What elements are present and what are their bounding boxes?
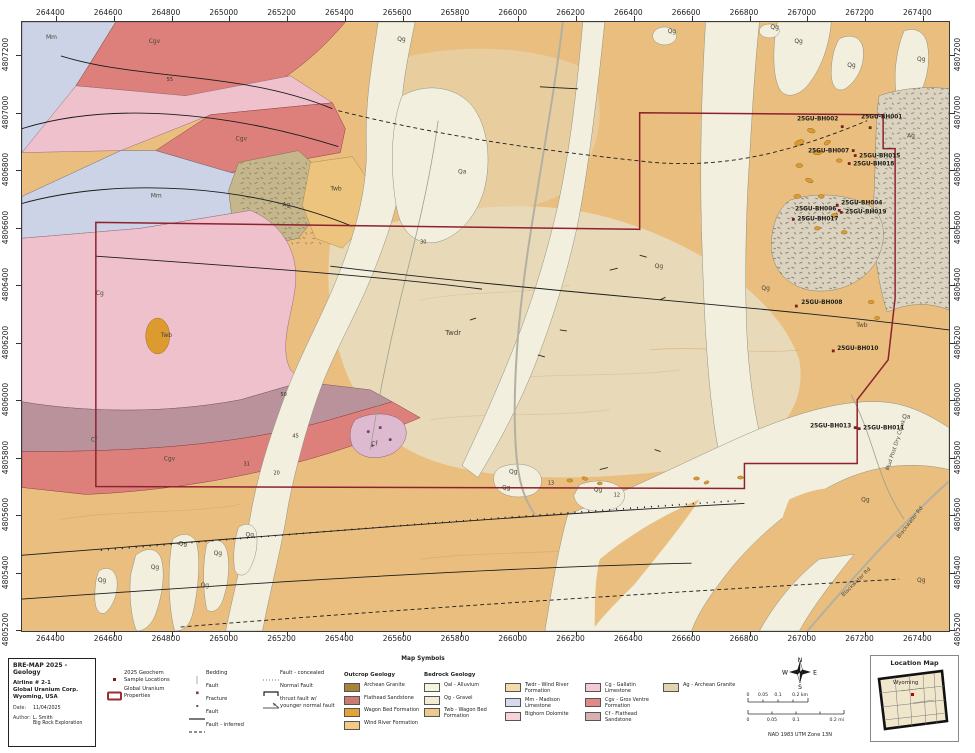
x-coord-bottom: 266200 [556, 634, 585, 643]
wyoming-map: Wyoming [871, 667, 958, 733]
date-label: Date: [13, 706, 29, 711]
sample-label: 25GU-BH011 [863, 426, 904, 432]
datum-note: NAD 1983 UTM Zone 13N [745, 732, 855, 738]
grid-tick [950, 113, 955, 114]
x-coord-top: 264800 [152, 8, 181, 17]
km-tick-label: 0.05 [758, 692, 768, 698]
symbol-legend-column: BeddingFaultFractureFaultFault - inferre… [188, 670, 244, 735]
geology-legend-item: Flathead Sandstone [344, 695, 419, 705]
geology-legend-column: Twdr - Wind RiverFormationMm - MadisonLi… [505, 672, 569, 724]
unit-label: Twb [160, 332, 173, 339]
grid-tick [16, 515, 21, 516]
dip-label: 50 [280, 392, 286, 398]
grid-tick [950, 458, 955, 459]
grid-tick [229, 16, 230, 21]
geology-legend-item: Cf - FlatheadSandstone [585, 711, 649, 723]
grid-tick [634, 632, 635, 637]
geology-legend-item: Wagon Bed Formation [344, 707, 419, 717]
legend-item: Fault - concealed [262, 670, 335, 680]
grid-tick [345, 632, 346, 637]
unit-label: Twb [329, 185, 342, 192]
unit-label: Wind River Formation [364, 720, 418, 726]
mi-labels: 00.050.10.2 mi [747, 717, 844, 723]
legend-item-label: Normal Fault [280, 683, 313, 690]
bedding-icon [188, 670, 206, 680]
unit-label: Cg - GallatinLimestone [605, 682, 636, 694]
grid-tick [16, 170, 21, 171]
x-coord-bottom: 266000 [498, 634, 527, 643]
sample-label: 25GU-BH018 [853, 162, 894, 168]
x-coord-bottom: 267400 [903, 634, 932, 643]
geology-legend-column: Cg - GallatinLimestoneCgv - Gros VentreF… [585, 672, 649, 726]
grid-tick [172, 632, 173, 637]
unit-label: Twdr - Wind RiverFormation [525, 682, 569, 694]
grid-tick [56, 16, 57, 21]
y-coord-left: 4805200 [1, 613, 10, 646]
page: MmCgvCgvMmAgTwbQaQgQgQgQgQgQgAgCgTwbCfCg… [0, 0, 975, 753]
grid-tick [950, 515, 955, 516]
unit-color-swatch [585, 683, 601, 692]
legend-item-label: 2025 GeochemSample Locations [124, 670, 170, 683]
compass-e: E [813, 670, 817, 677]
unit-label: Cgv [149, 38, 161, 45]
thrust-fault-icon [262, 696, 280, 706]
grid-tick [807, 16, 808, 21]
map-canvas: MmCgvCgvMmAgTwbQaQgQgQgQgQgQgAgCgTwbCfCg… [21, 21, 950, 632]
sample-marker [848, 162, 851, 165]
unit-label: Mm [46, 34, 57, 41]
unit-label: Wagon Bed Formation [364, 707, 419, 713]
location-map: Location Map Wyoming [870, 655, 959, 742]
geology-group-header [505, 672, 569, 679]
grid-tick [950, 55, 955, 56]
grid-tick [950, 573, 955, 574]
unit-label: Flathead Sandstone [364, 695, 414, 701]
unit-label: Twb [855, 322, 868, 329]
y-coord-left: 4807200 [1, 38, 10, 71]
unit-label: Cgv [236, 136, 248, 143]
author-label: Author: [13, 716, 29, 726]
unit-label: Qg [794, 38, 803, 45]
x-coord-top: 266400 [614, 8, 643, 17]
unit-label: Qa [902, 414, 911, 421]
unit-label: Qg [214, 550, 223, 557]
unit-color-swatch [585, 698, 601, 707]
unit-label: Qg [594, 486, 603, 493]
unit-label: Qg [246, 531, 255, 538]
legend-item-label: Global UraniumProperties [124, 686, 164, 699]
x-coord-bottom: 265600 [383, 634, 412, 643]
fault-concealed-icon [262, 670, 280, 680]
unit-label: Mm - MadisonLimestone [525, 697, 560, 709]
unit-color-swatch [424, 696, 440, 705]
legend-item: Fault - inferred [188, 722, 244, 732]
project-name: Airline # 2-1 [13, 680, 91, 687]
grid-tick [865, 16, 866, 21]
unit-label: Qg [502, 484, 511, 491]
x-coord-top: 265800 [441, 8, 470, 17]
geology-legend-item: Cgv - Gros VentreFormation [585, 697, 649, 709]
project-location: Wyoming, USA [13, 694, 91, 701]
unit-label: Qg [397, 36, 406, 43]
grid-tick [750, 16, 751, 21]
unit-color-swatch [585, 712, 601, 721]
dip-label: 12 [614, 492, 620, 498]
sample-label: 25GU-BH013 [810, 424, 851, 430]
map-title: BRE-MAP 2025 - Geology [13, 662, 91, 676]
sample-label: 25GU-BH002 [797, 117, 838, 123]
sample-marker [840, 211, 843, 214]
grid-tick [807, 632, 808, 637]
grid-tick [950, 400, 955, 401]
sample-label: 25GU-BH015 [859, 154, 900, 160]
unit-label: Qg [847, 62, 856, 69]
sample-marker [858, 427, 861, 430]
x-coord-top: 267000 [787, 8, 816, 17]
x-coord-bottom: 264400 [36, 634, 65, 643]
grid-tick [950, 285, 955, 286]
company-name: Global Uranium Corp. [13, 687, 91, 694]
grid-tick [16, 343, 21, 344]
x-coord-top: 264600 [94, 8, 123, 17]
compass-n: N [798, 657, 803, 664]
grid-tick [287, 16, 288, 21]
unit-color-swatch [424, 708, 440, 717]
unit-label: Cf [91, 437, 98, 444]
legend-item: Fault [188, 709, 244, 719]
date-row: Date: 11/04/2025 [13, 706, 91, 711]
legend-item: Fault [188, 683, 244, 693]
sample-label: 25GU-BH004 [841, 200, 882, 206]
unit-label: Qg [917, 56, 926, 63]
sample-marker [792, 218, 795, 221]
dip-label: 31 [244, 462, 250, 468]
grid-tick [287, 632, 288, 637]
mi-tick-label: 0 [747, 717, 750, 723]
y-coord-left: 4807000 [1, 95, 10, 128]
fault-dot-icon [188, 683, 206, 693]
x-coord-top: 265200 [267, 8, 296, 17]
x-coord-top: 267400 [903, 8, 932, 17]
unit-color-swatch [344, 708, 360, 717]
unit-label: Qg - Gravel [444, 695, 473, 701]
grid-tick [950, 630, 955, 631]
geology-legend-item: Ag - Archean Granite [663, 682, 735, 692]
geology-group-header [663, 672, 735, 679]
geology-legend-item: Cg - GallatinLimestone [585, 682, 649, 694]
grid-tick [114, 16, 115, 21]
unit-label: Qg [917, 577, 926, 584]
x-coord-bottom: 265800 [441, 634, 470, 643]
legend-item-label: Fault [206, 683, 218, 690]
unit-label: Cf [371, 441, 378, 448]
sample-dot-icon [106, 670, 124, 680]
km-bar [748, 698, 808, 702]
unit-label: Qg [655, 263, 664, 270]
fracture-dot-icon [188, 696, 206, 706]
gallatin-main [22, 210, 302, 410]
legend-item: 2025 GeochemSample Locations [106, 670, 170, 683]
grid-tick [461, 16, 462, 21]
unit-label: Qal - Alluvium [444, 682, 479, 688]
unit-color-swatch [424, 683, 440, 692]
y-coord-left: 4806600 [1, 210, 10, 243]
mi-tick-label: 0.2 mi [829, 717, 844, 723]
unit-label: Qg [861, 496, 870, 503]
grid-tick [16, 400, 21, 401]
unit-label: Cgv - Gros VentreFormation [605, 697, 649, 709]
x-coord-top: 265400 [325, 8, 354, 17]
map-symbols-title: Map Symbols [388, 656, 458, 662]
grid-tick [16, 113, 21, 114]
grid-tick [518, 632, 519, 637]
grid-tick [229, 632, 230, 637]
date-value: 11/04/2025 [33, 706, 61, 711]
sample-label: 25GU-BH010 [837, 346, 878, 352]
dip-label: 55 [167, 77, 173, 83]
legend-item: Normal Fault [262, 683, 335, 693]
unit-color-swatch [505, 683, 521, 692]
grid-tick [16, 458, 21, 459]
x-coord-top: 265600 [383, 8, 412, 17]
sample-label: 25GU-BH008 [801, 300, 842, 306]
x-coord-bottom: 266600 [672, 634, 701, 643]
geology-legend-item: Qg - Gravel [424, 695, 487, 705]
geology-legend-item: Twb - Wagon BedFormation [424, 707, 487, 719]
y-coord-left: 4805400 [1, 555, 10, 588]
fault-line-icon [188, 709, 206, 719]
sample-label: 25GU-BH007 [808, 149, 849, 155]
grid-tick [172, 16, 173, 21]
grid-tick [16, 630, 21, 631]
grid-tick [950, 228, 955, 229]
unit-label: Ag - Archean Granite [683, 682, 735, 688]
sample-marker [836, 204, 839, 207]
unit-label: Bighorn Dolomite [525, 711, 569, 717]
grid-tick [923, 16, 924, 21]
grid-tick [692, 632, 693, 637]
x-coord-top: 266200 [556, 8, 585, 17]
sample-marker [869, 126, 872, 129]
grid-tick [56, 632, 57, 637]
x-coord-top: 267200 [845, 8, 874, 17]
unit-label: Qg [509, 469, 518, 476]
sample-label: 25GU-BH006 [795, 206, 836, 212]
x-coord-bottom: 265200 [267, 634, 296, 643]
unit-color-swatch [505, 698, 521, 707]
legend-item-label: Fault [206, 709, 218, 716]
geology-legend-column: Bedrock GeologyQal - AlluviumQg - Gravel… [424, 672, 487, 722]
north-arrow: N W E S [780, 656, 820, 690]
symbol-legend-column: Fault - concealedNormal Faultthrust faul… [262, 670, 335, 712]
grid-tick [16, 55, 21, 56]
property-rect-icon [106, 686, 124, 696]
geology-legend-item: Archean Granite [344, 682, 419, 692]
grid-tick [403, 16, 404, 21]
x-coord-bottom: 264800 [152, 634, 181, 643]
geology-legend-item: Mm - MadisonLimestone [505, 697, 569, 709]
unit-label: Qa [458, 169, 467, 176]
grid-tick [16, 228, 21, 229]
archean-speckle-east [873, 88, 949, 312]
km-labels: 00.050.10.2 km [747, 692, 809, 698]
mi-bar [748, 710, 844, 714]
x-coord-bottom: 266400 [614, 634, 643, 643]
grid-tick [865, 632, 866, 637]
compass-w: W [782, 670, 788, 677]
grid-tick [16, 285, 21, 286]
dip-label: 20 [273, 471, 279, 477]
dip-label: 13 [548, 480, 554, 486]
unit-label: Twb - Wagon BedFormation [444, 707, 487, 719]
unit-color-swatch [344, 721, 360, 730]
legend-item-label: Bedding [206, 670, 227, 677]
mi-tick-label: 0.1 [792, 717, 799, 723]
x-coord-bottom: 265400 [325, 634, 354, 643]
unit-label: Ag [907, 133, 915, 140]
site-marker [911, 693, 914, 696]
x-coord-top: 265000 [209, 8, 238, 17]
grid-tick [576, 16, 577, 21]
unit-label: Qg [668, 28, 677, 35]
grid-tick [576, 632, 577, 637]
x-coord-bottom: 266800 [730, 634, 759, 643]
normal-fault-icon [262, 683, 280, 693]
grid-tick [750, 632, 751, 637]
sample-marker [832, 350, 835, 353]
dip-label: 45 [292, 434, 298, 440]
y-coord-left: 4806000 [1, 383, 10, 416]
geology-group-header: Bedrock Geology [424, 672, 487, 679]
km-tick-label: 0.1 [774, 692, 781, 698]
fault-inferred-icon [188, 722, 206, 732]
sample-marker [854, 426, 857, 429]
unit-label: Qg [151, 564, 160, 571]
title-block: BRE-MAP 2025 - Geology Airline # 2-1 Glo… [8, 658, 96, 747]
location-map-title: Location Map [871, 659, 958, 667]
grid-tick [692, 16, 693, 21]
sample-label: 25GU-BH019 [845, 209, 886, 215]
sample-marker [852, 149, 855, 152]
legend-item: thrust fault w/younger normal fault [262, 696, 335, 709]
grid-tick [518, 16, 519, 21]
unit-label: Cg [96, 290, 104, 297]
y-coord-left: 4805600 [1, 498, 10, 531]
x-coord-top: 266800 [730, 8, 759, 17]
geology-legend-column: Outcrop GeologyArchean GraniteFlathead S… [344, 672, 419, 732]
geology-group-header [585, 672, 649, 679]
geologic-map: MmCgvCgvMmAgTwbQaQgQgQgQgQgQgAgCgTwbCfCg… [22, 22, 949, 631]
x-coord-bottom: 265000 [209, 634, 238, 643]
sample-marker [795, 305, 798, 308]
sample-marker [841, 125, 844, 128]
x-coord-bottom: 267000 [787, 634, 816, 643]
km-tick-label: 0 [747, 692, 750, 698]
geology-legend-item: Bighorn Dolomite [505, 711, 569, 721]
unit-color-swatch [663, 683, 679, 692]
unit-label: Qg [98, 577, 107, 584]
y-coord-left: 4806400 [1, 268, 10, 301]
mi-tick-label: 0.05 [767, 717, 777, 723]
geology-group-header: Outcrop Geology [344, 672, 419, 679]
y-coord-left: 4806800 [1, 153, 10, 186]
sample-marker [854, 154, 857, 157]
geology-legend-item: Wind River Formation [344, 720, 419, 730]
unit-label: Qg [761, 285, 770, 292]
unit-label: Qg [201, 582, 210, 589]
grid-tick [950, 343, 955, 344]
geology-legend-item: Twdr - Wind RiverFormation [505, 682, 569, 694]
unit-label: Cf - FlatheadSandstone [605, 711, 637, 723]
x-coord-top: 266600 [672, 8, 701, 17]
dip-label: 30 [420, 239, 426, 245]
scale-bar: 00.050.10.2 km 00.050.10.2 mi [742, 690, 857, 730]
author-row: Author: L. Smith Big Rock Exploration [13, 716, 91, 726]
sample-label: 25GU-BH017 [797, 216, 838, 222]
legend-item: Bedding [188, 670, 244, 680]
unit-label: Twdr [444, 329, 461, 337]
legend-item-label: thrust fault w/younger normal fault [280, 696, 335, 709]
geology-legend-column: Ag - Archean Granite [663, 672, 735, 695]
unit-label: Mm [151, 192, 162, 199]
x-coord-bottom: 264600 [94, 634, 123, 643]
grid-tick [923, 632, 924, 637]
y-coord-left: 4805800 [1, 440, 10, 473]
grid-tick [114, 632, 115, 637]
legend-item-label: Fracture [206, 696, 227, 703]
km-tick-label: 0.2 km [792, 692, 808, 698]
author-value: L. Smith Big Rock Exploration [33, 716, 82, 726]
unit-label: Qg [770, 24, 779, 31]
unit-color-swatch [344, 683, 360, 692]
unit-label: Ag [282, 201, 290, 208]
symbol-legend-column: 2025 GeochemSample LocationsGlobal Urani… [106, 670, 170, 702]
sample-label: 25GU-BH001 [861, 115, 902, 121]
legend-item-label: Fault - concealed [280, 670, 324, 677]
x-coord-top: 264400 [36, 8, 65, 17]
grid-tick [634, 16, 635, 21]
grid-tick [16, 573, 21, 574]
unit-label: Qg [179, 540, 188, 547]
x-coord-top: 266000 [498, 8, 527, 17]
y-coord-left: 4806200 [1, 325, 10, 358]
grid-tick [950, 170, 955, 171]
grid-tick [345, 16, 346, 21]
unit-label: Archean Granite [364, 682, 405, 688]
x-coord-bottom: 267200 [845, 634, 874, 643]
unit-color-swatch [344, 696, 360, 705]
grid-tick [461, 632, 462, 637]
unit-label: Cgv [164, 456, 176, 463]
geology-legend-item: Qal - Alluvium [424, 682, 487, 692]
legend-item: Fracture [188, 696, 244, 706]
legend-item-label: Fault - inferred [206, 722, 244, 729]
unit-color-swatch [505, 712, 521, 721]
state-label: Wyoming [893, 680, 918, 686]
grid-tick [403, 632, 404, 637]
legend-item: Global UraniumProperties [106, 686, 170, 699]
